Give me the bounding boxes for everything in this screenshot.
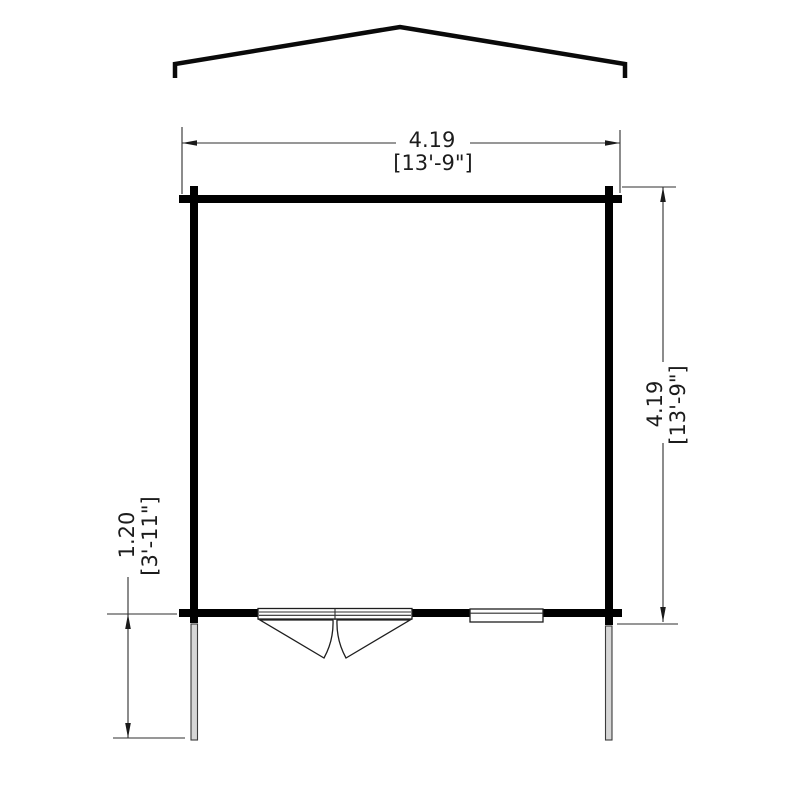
dimension-width-top: 4.19 [13'-9"] [182, 127, 620, 194]
width-imperial-label: [13'-9"] [393, 151, 472, 175]
porch-metric-label: 1.20 [115, 512, 139, 559]
width-metric-label: 4.19 [409, 128, 456, 152]
roof-outline [175, 27, 625, 78]
door-leaf-right [337, 620, 410, 658]
porch-posts [191, 624, 612, 740]
porch-imperial-label: [3'-11"] [138, 496, 162, 575]
porch-post-right [606, 626, 613, 740]
dimension-depth-right: 4.19 [13'-9"] [617, 187, 690, 624]
depth-imperial-label: [13'-9"] [666, 365, 690, 444]
porch-post-left [191, 624, 198, 740]
arrow-down-icon [660, 607, 666, 622]
cabin-walls [179, 186, 622, 625]
dimension-porch-left: 1.20 [3'-11"] [107, 496, 185, 738]
arrow-right-icon [605, 140, 620, 146]
arrow-up-icon [660, 187, 666, 202]
window [470, 609, 543, 622]
double-door [258, 609, 412, 659]
arrow-left-icon [182, 140, 197, 146]
arrow-up-icon [125, 614, 131, 629]
window-frame [470, 609, 543, 622]
depth-metric-label: 4.19 [643, 381, 667, 428]
door-leaf-left [260, 620, 333, 658]
floor-plan-diagram: 4.19 [13'-9"] 4.19 [13'-9"] 1.20 [3'-11"… [0, 0, 800, 800]
roof-ridge-line [175, 27, 625, 78]
arrow-down-icon [125, 723, 131, 738]
floor-plan-svg: 4.19 [13'-9"] 4.19 [13'-9"] 1.20 [3'-11"… [0, 0, 800, 800]
